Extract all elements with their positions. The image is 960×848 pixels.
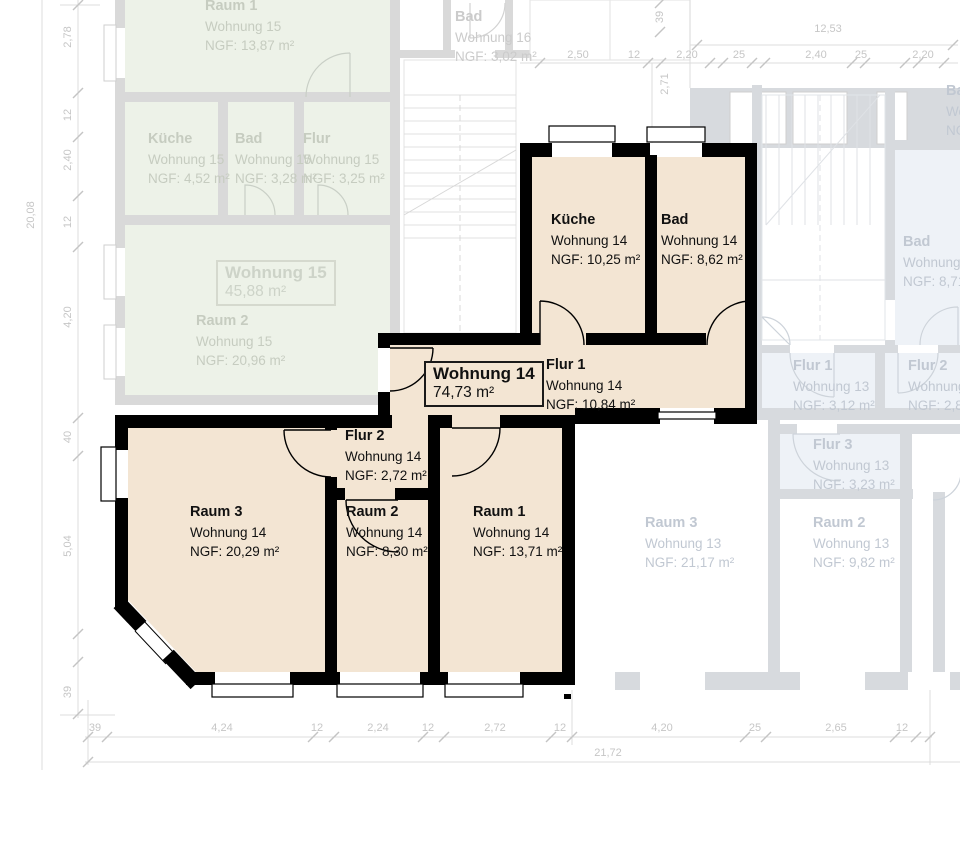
room-apartment: Wohnung 15 <box>205 18 294 35</box>
dimension-label: 4,20 <box>651 722 672 734</box>
room-label-raum3-w14: Raum 3 Wohnung 14 NGF: 20,29 m² <box>190 503 279 560</box>
room-area: NGF: 10,84 m² <box>546 396 635 413</box>
room-apartment: Wohnung 13 <box>813 457 895 474</box>
room-apartment: Wohnung 14 <box>346 524 428 541</box>
dimension-label: 2,20 <box>676 49 697 61</box>
dimension-label: 2,20 <box>912 49 933 61</box>
dimension-label: 2,72 <box>484 722 505 734</box>
room-name: Raum 2 <box>813 514 895 533</box>
dimension-label: 12 <box>62 109 74 121</box>
room-apartment: Wohnung 13 <box>908 378 960 395</box>
room-label-kueche-w14: Küche Wohnung 14 NGF: 10,25 m² <box>551 211 640 268</box>
room-apartment: Wohnung 14 <box>661 232 743 249</box>
dimension-label: 40 <box>62 431 74 443</box>
room-name: Flur <box>303 130 385 149</box>
room-apartment: Wohnung 15 <box>196 333 285 350</box>
room-apartment: Wohnung 14 <box>551 232 640 249</box>
room-name: Bad <box>946 82 960 101</box>
room-area: NGF: 20,96 m² <box>196 352 285 369</box>
room-name: Flur 1 <box>546 356 635 375</box>
room-name: Raum 1 <box>473 503 562 522</box>
room-apartment: Wohnung 14 <box>345 448 427 465</box>
room-area: NGF: 20,29 m² <box>190 543 279 560</box>
room-name: Bad <box>661 211 743 230</box>
room-area: NGF: 8,62 m² <box>661 251 743 268</box>
dimension-label: 2,65 <box>825 722 846 734</box>
room-name: Raum 2 <box>196 312 285 331</box>
apartment-area: 45,88 m² <box>225 283 327 301</box>
dimension-label: 2,40 <box>805 49 826 61</box>
room-name: Raum 1 <box>205 0 294 16</box>
room-area: NGF: 3,25 m² <box>303 170 385 187</box>
apartment-15-window-sills <box>104 25 116 379</box>
stairs-left <box>404 60 516 333</box>
room-area: NGF: 4,52 m² <box>148 170 230 187</box>
room-name: Bad <box>903 233 960 252</box>
dimension-total-label: 12,53 <box>814 23 842 35</box>
dimension-label: 25 <box>855 49 867 61</box>
room-area: NGF: 13,87 m² <box>205 37 294 54</box>
dimension-label: 12 <box>896 722 908 734</box>
dimension-label: 2,71 <box>659 73 671 94</box>
room-label-raum3-w13: Raum 3 Wohnung 13 NGF: 21,17 m² <box>645 514 734 571</box>
apartment-title: Wohnung 14 <box>433 364 535 384</box>
dimension-label: 39 <box>89 722 101 734</box>
room-apartment: Wohnung 13 <box>645 535 734 552</box>
room-label-bad-w16: Bad Wohnung 16 NGF: 3,02 m² <box>455 8 537 65</box>
room-label-raum2-w15: Raum 2 Wohnung 15 NGF: 20,96 m² <box>196 312 285 369</box>
dimension-total-label: 20,08 <box>25 201 37 229</box>
room-area: NGF: 13,71 m² <box>473 543 562 560</box>
room-area: NGF: <box>946 122 960 139</box>
room-name: Küche <box>551 211 640 230</box>
room-name: Flur 2 <box>908 357 960 376</box>
dimension-label: 12 <box>311 722 323 734</box>
dimension-label: 2,78 <box>62 26 74 47</box>
dimension-label: 2,24 <box>367 722 388 734</box>
room-apartment: Wohnung 14 <box>473 524 562 541</box>
room-area: NGF: 8,30 m² <box>346 543 428 560</box>
room-area: NGF: 2,72 m² <box>345 467 427 484</box>
room-name: Raum 2 <box>346 503 428 522</box>
dimension-label: 25 <box>749 722 761 734</box>
room-label-bad-w13: Bad Wohnung 13 NGF: 8,71 m² <box>903 233 960 290</box>
dimension-label: 4,20 <box>62 306 74 327</box>
dimension-label: 25 <box>733 49 745 61</box>
apartment-15-title-box: Wohnung 15 45,88 m² <box>216 260 336 306</box>
room-area: NGF: 3,23 m² <box>813 476 895 493</box>
dimension-label: 12 <box>422 722 434 734</box>
dimension-total-label: 21,72 <box>594 747 622 759</box>
room-apartment: Wohnung 13 <box>793 378 875 395</box>
room-area: NGF: 3,02 m² <box>455 48 537 65</box>
room-name: Flur 3 <box>813 436 895 455</box>
room-label-raum2-w14: Raum 2 Wohnung 14 NGF: 8,30 m² <box>346 503 428 560</box>
room-apartment: Wohnung 15 <box>148 151 230 168</box>
room-area: NGF: 9,82 m² <box>813 554 895 571</box>
dimension-label: 12 <box>628 49 640 61</box>
dimension-label: 5,04 <box>62 535 74 556</box>
room-name: Küche <box>148 130 230 149</box>
dimension-label: 39 <box>654 11 666 23</box>
room-area: NGF: 10,25 m² <box>551 251 640 268</box>
dimension-label: 4,24 <box>211 722 232 734</box>
room-area: NGF: 2,86 m² <box>908 397 960 414</box>
room-label-flur2-w14: Flur 2 Wohnung 14 NGF: 2,72 m² <box>345 427 427 484</box>
floor-plan-drawing <box>0 0 960 848</box>
room-label-raum2-w13: Raum 2 Wohnung 13 NGF: 9,82 m² <box>813 514 895 571</box>
apartment-area: 74,73 m² <box>433 384 535 402</box>
room-label-flur1-w14: Flur 1 Wohnung 14 NGF: 10,84 m² <box>546 356 635 413</box>
room-area: NGF: 3,12 m² <box>793 397 875 414</box>
room-apartment: Wohnung 13 <box>903 254 960 271</box>
room-name: Raum 3 <box>645 514 734 533</box>
room-apartment: Wohnung 16 <box>455 29 537 46</box>
room-name: Flur 2 <box>345 427 427 446</box>
room-label-flur-w15: Flur Wohnung 15 NGF: 3,25 m² <box>303 130 385 187</box>
dimension-label: 2,50 <box>567 49 588 61</box>
room-label-kueche-w15: Küche Wohnung 15 NGF: 4,52 m² <box>148 130 230 187</box>
dimension-label: 2,40 <box>62 149 74 170</box>
room-apartment: Wohnung 14 <box>546 377 635 394</box>
dimension-label: 12 <box>62 216 74 228</box>
apartment-14-title-box: Wohnung 14 74,73 m² <box>424 361 544 407</box>
room-label-raum1-w15: Raum 1 Wohnung 15 NGF: 13,87 m² <box>205 0 294 54</box>
room-apartment: Wohnung 14 <box>190 524 279 541</box>
room-area: NGF: 21,17 m² <box>645 554 734 571</box>
room-apartment: Wohnung 15 <box>303 151 385 168</box>
apartment-title: Wohnung 15 <box>225 263 327 283</box>
room-area: NGF: 8,71 m² <box>903 273 960 290</box>
room-label-edge-w13: Bad Wohnung NGF: <box>946 82 960 139</box>
room-apartment: Wohnung <box>946 103 960 120</box>
dimension-label: 39 <box>62 686 74 698</box>
room-label-flur1-w13: Flur 1 Wohnung 13 NGF: 3,12 m² <box>793 357 875 414</box>
floor-plan: Küche Wohnung 14 NGF: 10,25 m² Bad Wohnu… <box>0 0 960 848</box>
room-name: Flur 1 <box>793 357 875 376</box>
room-label-flur3-w13: Flur 3 Wohnung 13 NGF: 3,23 m² <box>813 436 895 493</box>
apartment-13-top-band <box>690 88 960 148</box>
room-apartment: Wohnung 13 <box>813 535 895 552</box>
room-label-bad-w14: Bad Wohnung 14 NGF: 8,62 m² <box>661 211 743 268</box>
room-label-raum1-w14: Raum 1 Wohnung 14 NGF: 13,71 m² <box>473 503 562 560</box>
dimension-label: 12 <box>554 722 566 734</box>
room-name: Bad <box>455 8 537 27</box>
room-label-flur2-w13: Flur 2 Wohnung 13 NGF: 2,86 m² <box>908 357 960 414</box>
room-name: Raum 3 <box>190 503 279 522</box>
